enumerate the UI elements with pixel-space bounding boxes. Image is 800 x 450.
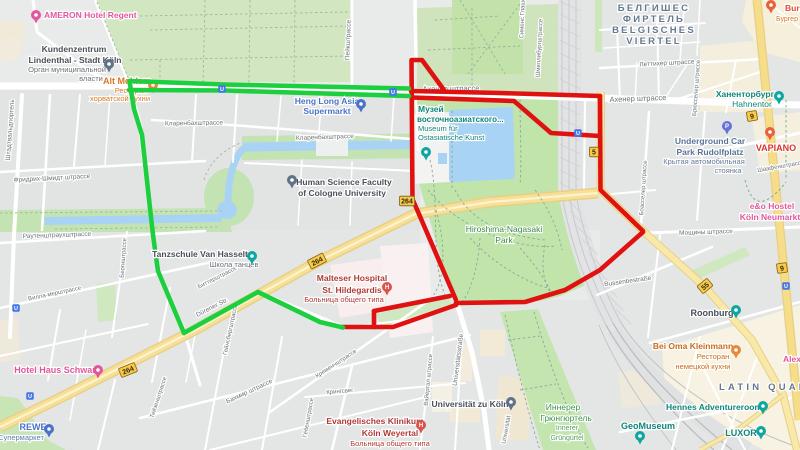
svg-text:Malteser Hospital: Malteser Hospital: [317, 273, 387, 283]
svg-text:H: H: [419, 423, 423, 429]
svg-text:Орган муниципальной: Орган муниципальной: [28, 65, 106, 74]
svg-text:VIERTEL: VIERTEL: [626, 36, 682, 47]
svg-text:Крытая автомобильная: Крытая автомобильная: [663, 157, 745, 166]
svg-text:Human Science Faculty: Human Science Faculty: [296, 177, 392, 187]
svg-text:U: U: [576, 131, 580, 137]
svg-text:U: U: [14, 306, 18, 312]
svg-text:Ostasiatische Kunst: Ostasiatische Kunst: [418, 133, 485, 142]
svg-text:БЕЛГИШЕС: БЕЛГИШЕС: [618, 3, 690, 14]
svg-text:Hennes Adventureroom: Hennes Adventureroom: [666, 402, 762, 412]
svg-text:Грюнгюртель: Грюнгюртель: [540, 413, 592, 423]
svg-text:Bei Oma Kleinmann: Bei Oma Kleinmann: [653, 341, 733, 351]
svg-text:LUXOR: LUXOR: [725, 428, 757, 438]
svg-text:Больница общего типа: Больница общего типа: [304, 295, 384, 304]
svg-text:H: H: [385, 285, 389, 291]
svg-text:264: 264: [401, 199, 413, 206]
svg-text:Supermarkt: Supermarkt: [303, 106, 350, 116]
svg-text:Кларенбахштрассе: Кларенбахштрассе: [165, 118, 224, 127]
svg-text:Underground Car: Underground Car: [675, 136, 746, 146]
svg-text:Innerer: Innerer: [556, 425, 579, 432]
svg-text:Universität zu Köln: Universität zu Köln: [432, 399, 509, 409]
svg-text:AMERON Hotel Regent: AMERON Hotel Regent: [44, 10, 137, 20]
svg-text:VAPIANO: VAPIANO: [756, 143, 796, 153]
svg-text:власти: власти: [79, 74, 103, 83]
svg-text:стоянка: стоянка: [714, 166, 742, 175]
svg-text:Köln Neumarkt: Köln Neumarkt: [740, 212, 800, 222]
svg-text:U: U: [28, 394, 32, 400]
svg-text:GeoMuseum: GeoMuseum: [621, 421, 675, 431]
svg-text:Park: Park: [495, 235, 513, 245]
svg-text:e&o Hostel: e&o Hostel: [750, 201, 794, 211]
svg-text:Ресторан: Ресторан: [697, 352, 730, 361]
svg-text:Супермаркет: Супермаркет: [0, 433, 44, 442]
svg-text:Museum für: Museum für: [418, 124, 458, 133]
svg-text:немецкой кухни: немецкой кухни: [676, 362, 731, 371]
svg-text:Heng Long Asia: Heng Long Asia: [295, 96, 360, 106]
svg-text:Grüngürtel: Grüngürtel: [550, 435, 584, 442]
svg-text:Roonburg: Roonburg: [691, 308, 734, 318]
svg-text:U: U: [391, 90, 395, 96]
svg-text:5: 5: [592, 150, 596, 157]
svg-text:BELGISCHES: BELGISCHES: [612, 25, 696, 36]
svg-text:Kundenzentrum: Kundenzentrum: [42, 44, 107, 54]
svg-text:Hotel Haus Schwan: Hotel Haus Schwan: [14, 365, 98, 375]
svg-text:ФИРТЕЛЬ: ФИРТЕЛЬ: [623, 14, 685, 25]
svg-text:St. Hildegardis: St. Hildegardis: [322, 285, 382, 295]
svg-text:LATIN QUARTE: LATIN QUARTE: [719, 382, 800, 393]
svg-text:U: U: [220, 87, 224, 93]
svg-text:Бургер: Бургер: [776, 16, 798, 23]
svg-text:Evangelisches Klinikum: Evangelisches Klinikum: [326, 416, 424, 426]
svg-text:Hiroshima-Nagasaki: Hiroshima-Nagasaki: [466, 224, 543, 234]
svg-text:Иннерер: Иннерер: [546, 402, 581, 412]
svg-text:Burger: Burger: [785, 3, 800, 13]
svg-text:Музей: Музей: [418, 104, 444, 114]
svg-text:REWE: REWE: [20, 422, 47, 432]
svg-text:U: U: [784, 284, 788, 290]
svg-text:Hahnentor: Hahnentor: [732, 99, 772, 109]
svg-text:Пейкштрассе: Пейкштрассе: [343, 19, 352, 60]
svg-text:Alex: Alex: [783, 354, 800, 364]
svg-text:восточноазиатского...: восточноазиатского...: [417, 115, 504, 124]
svg-text:хорватской кухни: хорватской кухни: [90, 94, 150, 103]
svg-text:P: P: [725, 124, 729, 130]
svg-text:of Cologne University: of Cologne University: [298, 188, 386, 198]
svg-text:Park Rudolfplatz: Park Rudolfplatz: [676, 147, 743, 157]
svg-text:Tanzschule Van Hasselt: Tanzschule Van Hasselt: [152, 249, 248, 259]
svg-text:Ханенторбург: Ханенторбург: [716, 89, 775, 99]
svg-text:Больница общего типа: Больница общего типа: [350, 439, 430, 448]
svg-text:Köln Weyertal: Köln Weyertal: [362, 428, 419, 438]
